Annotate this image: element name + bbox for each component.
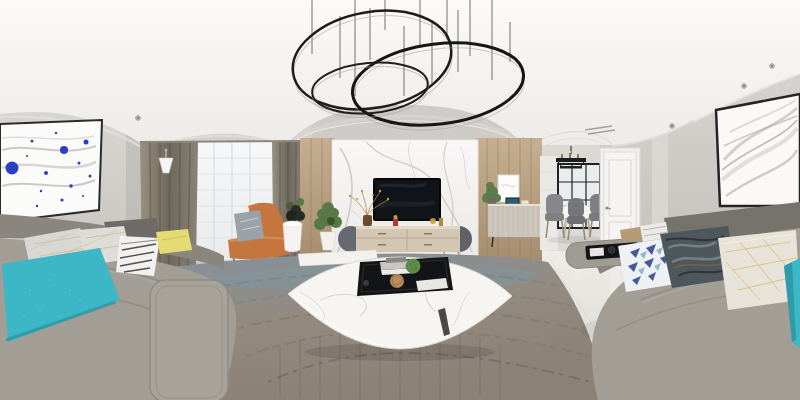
moss-ball [406, 259, 421, 274]
tv-reflection [380, 184, 426, 186]
stool-top [283, 221, 302, 227]
chaise-cushion [150, 280, 228, 400]
tray-cup [363, 280, 369, 286]
pillow-striped [116, 236, 160, 276]
curtain-rail [140, 141, 304, 142]
sideboard-top [488, 204, 548, 206]
television [374, 179, 440, 220]
gold-ornament [430, 218, 436, 224]
console-drawers [356, 226, 460, 252]
gold-vase [439, 218, 443, 226]
console-top-edge [356, 226, 460, 229]
panorama-photo [0, 0, 800, 400]
plant-foliage-dark [327, 217, 335, 225]
stool-body [283, 224, 302, 252]
right-artwork [716, 94, 800, 206]
coffee-cup-1 [608, 247, 615, 254]
left-artwork [0, 120, 102, 222]
tray-book [590, 248, 605, 257]
figurine-head [394, 215, 398, 219]
white-planter [320, 232, 336, 250]
table-tray [357, 257, 453, 296]
red-figurine [393, 218, 398, 226]
plant-pot-small [488, 198, 496, 204]
book-top [386, 257, 406, 263]
flower-vase [363, 215, 372, 226]
art-frame-right [716, 94, 800, 206]
tv-reflection-2 [379, 202, 435, 206]
pillow-yellow [156, 229, 192, 254]
